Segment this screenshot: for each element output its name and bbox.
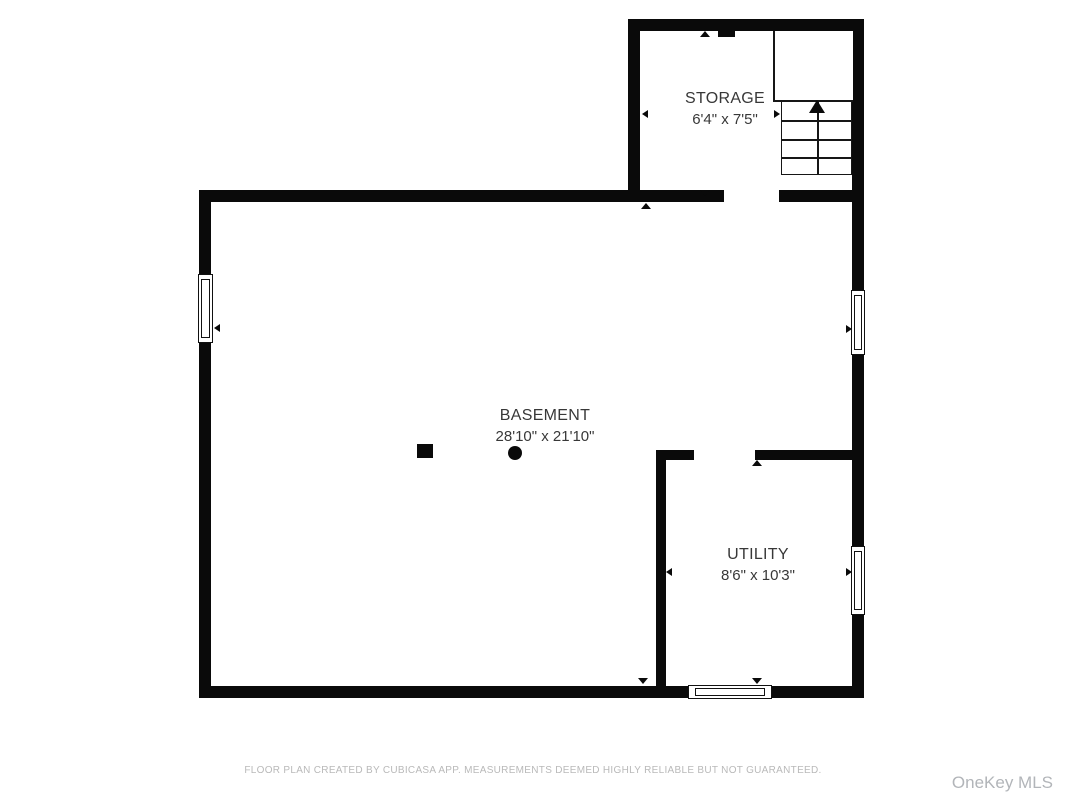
measure-arrow-icon (774, 110, 780, 118)
measure-arrow-icon (666, 568, 672, 576)
square-column-icon (417, 444, 433, 458)
basement-right-window-icon (851, 290, 865, 355)
utility-top-wall-right-segment (755, 450, 853, 460)
disclaimer-text: FLOOR PLAN CREATED BY CUBICASA APP. MEAS… (0, 765, 1066, 776)
utility-bottom-window-icon (688, 685, 772, 699)
measure-arrow-icon (846, 568, 852, 576)
room-label-basement: BASEMENT 28'10" x 21'10" (496, 406, 595, 447)
room-label-storage: STORAGE 6'4" x 7'5" (685, 89, 765, 130)
onekey-mls-watermark: OneKey MLS (952, 773, 1053, 793)
storage-bottom-wall-right-segment (779, 190, 864, 202)
round-column-icon (508, 446, 522, 460)
stair-wall-stub (718, 31, 735, 37)
basement-top-wall (199, 190, 724, 202)
window-sash (854, 551, 862, 610)
utility-left-wall (656, 450, 666, 686)
storage-left-wall (628, 19, 640, 202)
measure-arrow-icon (638, 678, 648, 684)
storage-top-wall (628, 19, 864, 31)
measure-arrow-icon (846, 325, 852, 333)
room-dimensions: 8'6" x 10'3" (721, 565, 795, 586)
utility-right-window-icon (851, 546, 865, 615)
left-exterior-wall (199, 190, 211, 698)
measure-arrow-icon (700, 31, 710, 37)
measure-arrow-icon (700, 190, 710, 196)
measure-arrow-icon (641, 203, 651, 209)
utility-top-wall-left-segment (656, 450, 694, 460)
room-name: BASEMENT (496, 406, 595, 426)
window-sash (695, 688, 765, 696)
room-label-utility: UTILITY 8'6" x 10'3" (721, 545, 795, 586)
measure-arrow-icon (752, 460, 762, 466)
stair-landing (773, 31, 853, 102)
window-sash (854, 295, 862, 350)
stairs-up-arrow-icon (809, 100, 825, 113)
measure-arrow-icon (214, 324, 220, 332)
room-dimensions: 28'10" x 21'10" (496, 426, 595, 447)
measure-arrow-icon (642, 110, 648, 118)
room-dimensions: 6'4" x 7'5" (685, 109, 765, 130)
floorplan-canvas: STORAGE 6'4" x 7'5" BASEMENT 28'10" x 21… (0, 0, 1066, 800)
room-name: UTILITY (721, 545, 795, 565)
basement-left-window-icon (198, 274, 213, 343)
room-name: STORAGE (685, 89, 765, 109)
measure-arrow-icon (752, 678, 762, 684)
window-sash (201, 279, 210, 338)
